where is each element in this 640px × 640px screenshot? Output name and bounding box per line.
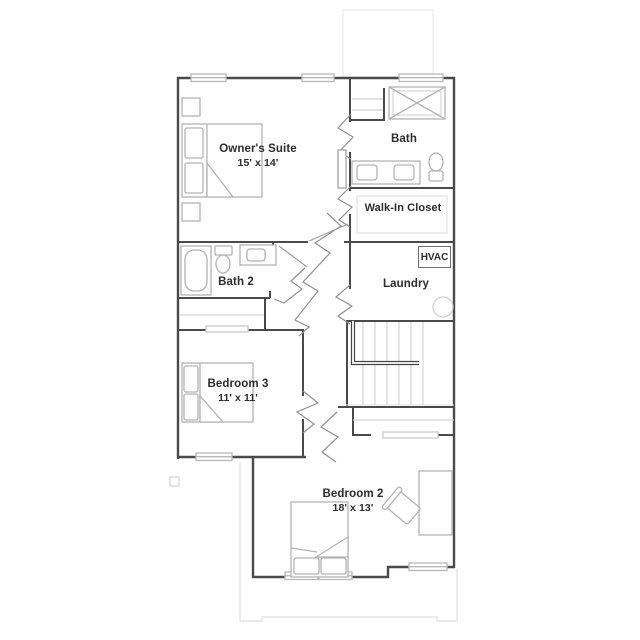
room-name: Walk-In Closet: [343, 201, 463, 215]
room-dims: 11' x 11': [178, 392, 298, 406]
floor-plan-drawing: [0, 0, 640, 640]
room-label-owners-suite: Owner's Suite 15' x 14': [188, 142, 328, 171]
bedroom3-furniture: [179, 315, 264, 422]
double-vanity-icon: [352, 161, 420, 184]
room-name: Bath: [374, 132, 434, 147]
toilet-icon: [215, 246, 232, 273]
room-name: Bedroom 3: [178, 377, 298, 392]
door-leaf: [279, 246, 307, 267]
floor-plan-page: Owner's Suite 15' x 14' Bath Walk-In Clo…: [0, 0, 640, 640]
room-name: Bath 2: [206, 275, 266, 290]
window-icon: [302, 74, 334, 82]
room-dims: 18' x 13': [293, 502, 413, 516]
room-label-bath-2: Bath 2: [206, 275, 266, 290]
room-label-bath: Bath: [374, 132, 434, 147]
closet-door-icon: [206, 326, 248, 332]
window-icon: [409, 563, 447, 571]
hvac-box: HVAC: [418, 246, 451, 268]
nightstand-icon: [182, 203, 200, 221]
desk-icon: [419, 471, 452, 535]
room-name: Owner's Suite: [188, 142, 328, 157]
door-leaf: [338, 150, 346, 188]
linen-shelves-icon: [352, 99, 383, 110]
toilet-icon: [429, 153, 443, 181]
closet-door-icon: [383, 432, 438, 438]
washer-drain-icon: [433, 297, 453, 317]
room-name: Bedroom 2: [293, 487, 413, 502]
shower-icon: [389, 87, 445, 119]
room-label-bedroom-3: Bedroom 3 11' x 11': [178, 377, 298, 406]
roof-outline-top: [343, 10, 433, 77]
vanity-icon: [240, 245, 276, 265]
window-icon: [196, 453, 232, 461]
nightstand-icon: [182, 98, 200, 116]
room-name: Laundry: [376, 277, 436, 292]
window-icon: [191, 74, 226, 82]
room-label-bedroom-2: Bedroom 2 18' x 13': [293, 487, 413, 516]
roof-outline-corner-square: [170, 477, 179, 486]
room-dims: 15' x 14': [188, 157, 328, 171]
window-icon: [399, 74, 443, 82]
stairs-icon: [346, 321, 454, 405]
room-name: HVAC: [421, 252, 449, 263]
room-label-laundry: Laundry: [376, 277, 436, 292]
room-label-walk-in-closet: Walk-In Closet: [343, 201, 463, 215]
door-leaf: [309, 224, 348, 241]
